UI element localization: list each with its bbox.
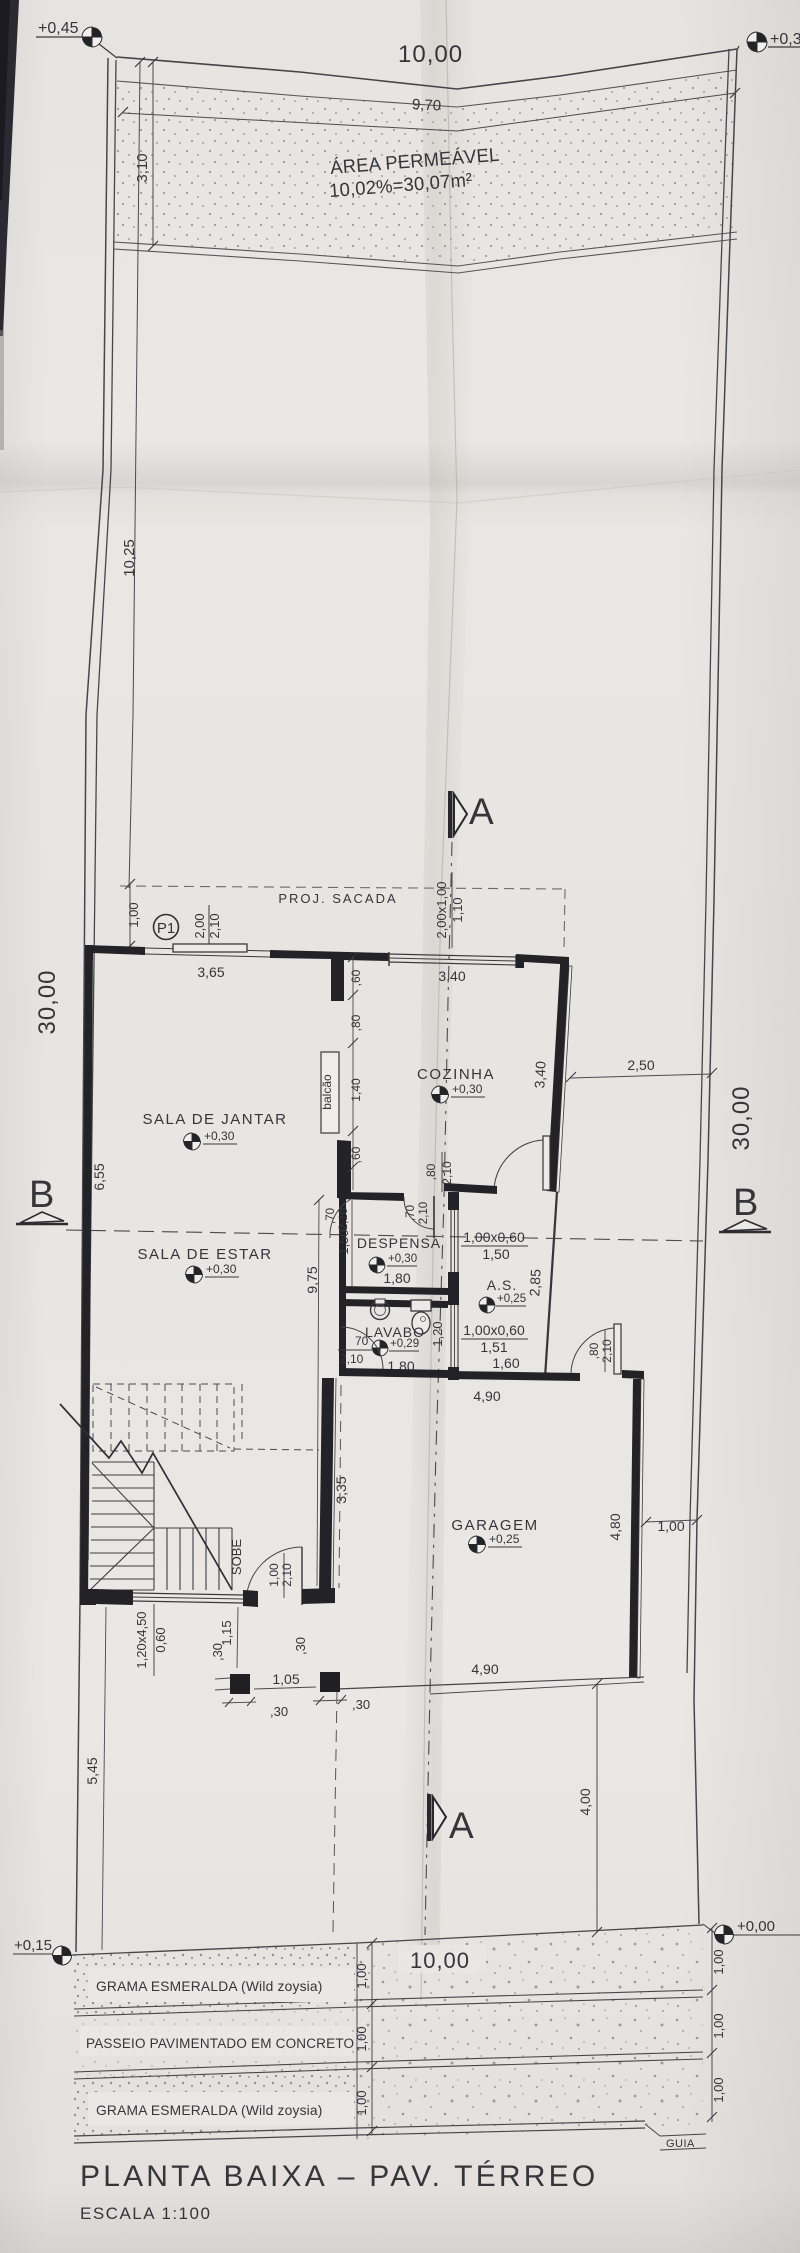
svg-text:2,10: 2,10: [440, 1161, 454, 1185]
svg-text:2,10: 2,10: [340, 1352, 364, 1366]
svg-text:1,50: 1,50: [482, 1246, 509, 1262]
svg-text:3,40: 3,40: [531, 1061, 548, 1089]
svg-text:+0,45: +0,45: [38, 20, 79, 37]
svg-text:70: 70: [355, 1334, 369, 1348]
svg-text:6,55: 6,55: [91, 1163, 107, 1190]
svg-text:,30: ,30: [270, 1704, 288, 1719]
svg-text:P1: P1: [157, 920, 175, 937]
svg-text:COZINHA: COZINHA: [417, 1066, 495, 1083]
svg-text:,80: ,80: [424, 1163, 438, 1180]
svg-text:4,00: 4,00: [577, 1788, 593, 1815]
svg-text:4,80: 4,80: [607, 1513, 623, 1540]
svg-text:1,51: 1,51: [480, 1339, 507, 1355]
svg-text:1,00: 1,00: [267, 1563, 281, 1587]
svg-text:,30: ,30: [293, 1637, 308, 1655]
svg-text:+0,30: +0,30: [204, 1129, 235, 1143]
svg-text:2,00: 2,00: [192, 913, 207, 938]
svg-text:10,00: 10,00: [410, 1948, 470, 1973]
svg-text:1,00: 1,00: [354, 1963, 369, 1988]
svg-text:GUIA: GUIA: [666, 2138, 695, 2150]
svg-text:GRAMA ESMERALDA (Wild zoysia): GRAMA ESMERALDA (Wild zoysia): [96, 2103, 323, 2118]
svg-text:1,15: 1,15: [219, 1620, 234, 1645]
svg-text:,30: ,30: [352, 1697, 370, 1712]
svg-text:+0,00: +0,00: [737, 1918, 775, 1935]
svg-text:+0,15: +0,15: [14, 1937, 52, 1954]
svg-text:,60: ,60: [349, 969, 363, 986]
svg-text:+0,30: +0,30: [206, 1262, 237, 1276]
svg-text:1,00: 1,00: [354, 2090, 369, 2115]
svg-text:+0,3: +0,3: [770, 31, 800, 48]
svg-text:A: A: [469, 791, 494, 832]
svg-text:10,25: 10,25: [121, 539, 138, 577]
svg-text:2,50: 2,50: [627, 1057, 654, 1073]
svg-text:2,10: 2,10: [338, 1208, 350, 1230]
svg-text:9,70: 9,70: [412, 96, 442, 115]
svg-text:,70: ,70: [325, 1208, 337, 1224]
svg-text:,30: ,30: [210, 1643, 225, 1661]
svg-text:A.S.: A.S.: [487, 1277, 517, 1293]
svg-text:SALA DE ESTAR: SALA DE ESTAR: [137, 1246, 272, 1263]
svg-text:,80: ,80: [349, 1014, 363, 1031]
svg-text:1,00: 1,00: [711, 2077, 726, 2102]
svg-text:2,85: 2,85: [526, 1269, 543, 1297]
svg-text:B: B: [29, 1174, 54, 1216]
svg-text:1,00: 1,00: [711, 1949, 726, 1974]
svg-text:1,50: 1,50: [336, 1229, 351, 1254]
svg-text:4,90: 4,90: [473, 1388, 500, 1404]
svg-text:1,40: 1,40: [349, 1078, 363, 1102]
svg-text:+0,25: +0,25: [489, 1532, 520, 1546]
svg-text:10,00: 10,00: [398, 41, 463, 68]
svg-text:1,00x0,60: 1,00x0,60: [463, 1229, 525, 1245]
svg-text:3,65: 3,65: [197, 964, 224, 980]
svg-text:balcão: balcão: [320, 1074, 334, 1110]
svg-text:2,10: 2,10: [600, 1339, 614, 1363]
svg-text:3,40: 3,40: [438, 968, 465, 984]
svg-text:PASSEIO PAVIMENTADO EM CONCRET: PASSEIO PAVIMENTADO EM CONCRETO: [86, 2036, 354, 2051]
svg-text:PLANTA BAIXA – PAV. TÉRREO: PLANTA BAIXA – PAV. TÉRREO: [80, 2160, 598, 2193]
svg-text:1,05: 1,05: [272, 1671, 299, 1687]
svg-text:+0,25: +0,25: [497, 1293, 526, 1305]
svg-text:0,60: 0,60: [153, 1627, 168, 1652]
svg-text:1,20x4,50: 1,20x4,50: [134, 1611, 149, 1668]
svg-text:+0,30: +0,30: [452, 1082, 483, 1096]
svg-text:ESCALA 1:100: ESCALA 1:100: [80, 2204, 211, 2223]
svg-text:B: B: [733, 1182, 758, 1224]
svg-text:1,00: 1,00: [126, 902, 141, 927]
svg-text:30,00: 30,00: [728, 1085, 755, 1150]
svg-text:1,00: 1,00: [657, 1518, 684, 1534]
svg-text:4,90: 4,90: [471, 1661, 498, 1677]
svg-text:1,80: 1,80: [383, 1270, 410, 1286]
svg-text:1,00: 1,00: [711, 2013, 726, 2038]
svg-text:1,60: 1,60: [492, 1355, 519, 1371]
svg-text:,80: ,80: [587, 1342, 601, 1359]
svg-text:2,00x1,00: 2,00x1,00: [434, 881, 449, 938]
svg-text:+0,30: +0,30: [388, 1253, 417, 1265]
svg-text:SOBE: SOBE: [229, 1539, 244, 1575]
svg-text:1,00: 1,00: [354, 2026, 369, 2051]
svg-text:2,10: 2,10: [207, 913, 222, 938]
svg-text:DESPENSA: DESPENSA: [357, 1235, 441, 1251]
svg-text:2,10: 2,10: [418, 1202, 430, 1224]
svg-text:+0,29: +0,29: [390, 1338, 419, 1350]
svg-text:1,00x0,60: 1,00x0,60: [463, 1322, 525, 1338]
svg-text:1,10: 1,10: [450, 897, 465, 922]
svg-text:5,45: 5,45: [84, 1757, 100, 1784]
svg-text:,70: ,70: [405, 1205, 417, 1221]
svg-text:30,00: 30,00: [34, 969, 61, 1034]
svg-text:9,75: 9,75: [304, 1266, 320, 1293]
svg-text:GRAMA ESMERALDA (Wild zoysia): GRAMA ESMERALDA (Wild zoysia): [96, 1979, 323, 1994]
svg-text:PROJ. SACADA: PROJ. SACADA: [278, 891, 397, 906]
svg-text:1,20: 1,20: [430, 1321, 445, 1346]
svg-text:3,10: 3,10: [134, 153, 151, 182]
svg-text:,60: ,60: [349, 1146, 363, 1163]
svg-text:SALA DE JANTAR: SALA DE JANTAR: [143, 1111, 288, 1128]
svg-text:A: A: [449, 1805, 474, 1846]
svg-text:3,35: 3,35: [333, 1476, 349, 1503]
svg-text:2,10: 2,10: [280, 1563, 294, 1587]
